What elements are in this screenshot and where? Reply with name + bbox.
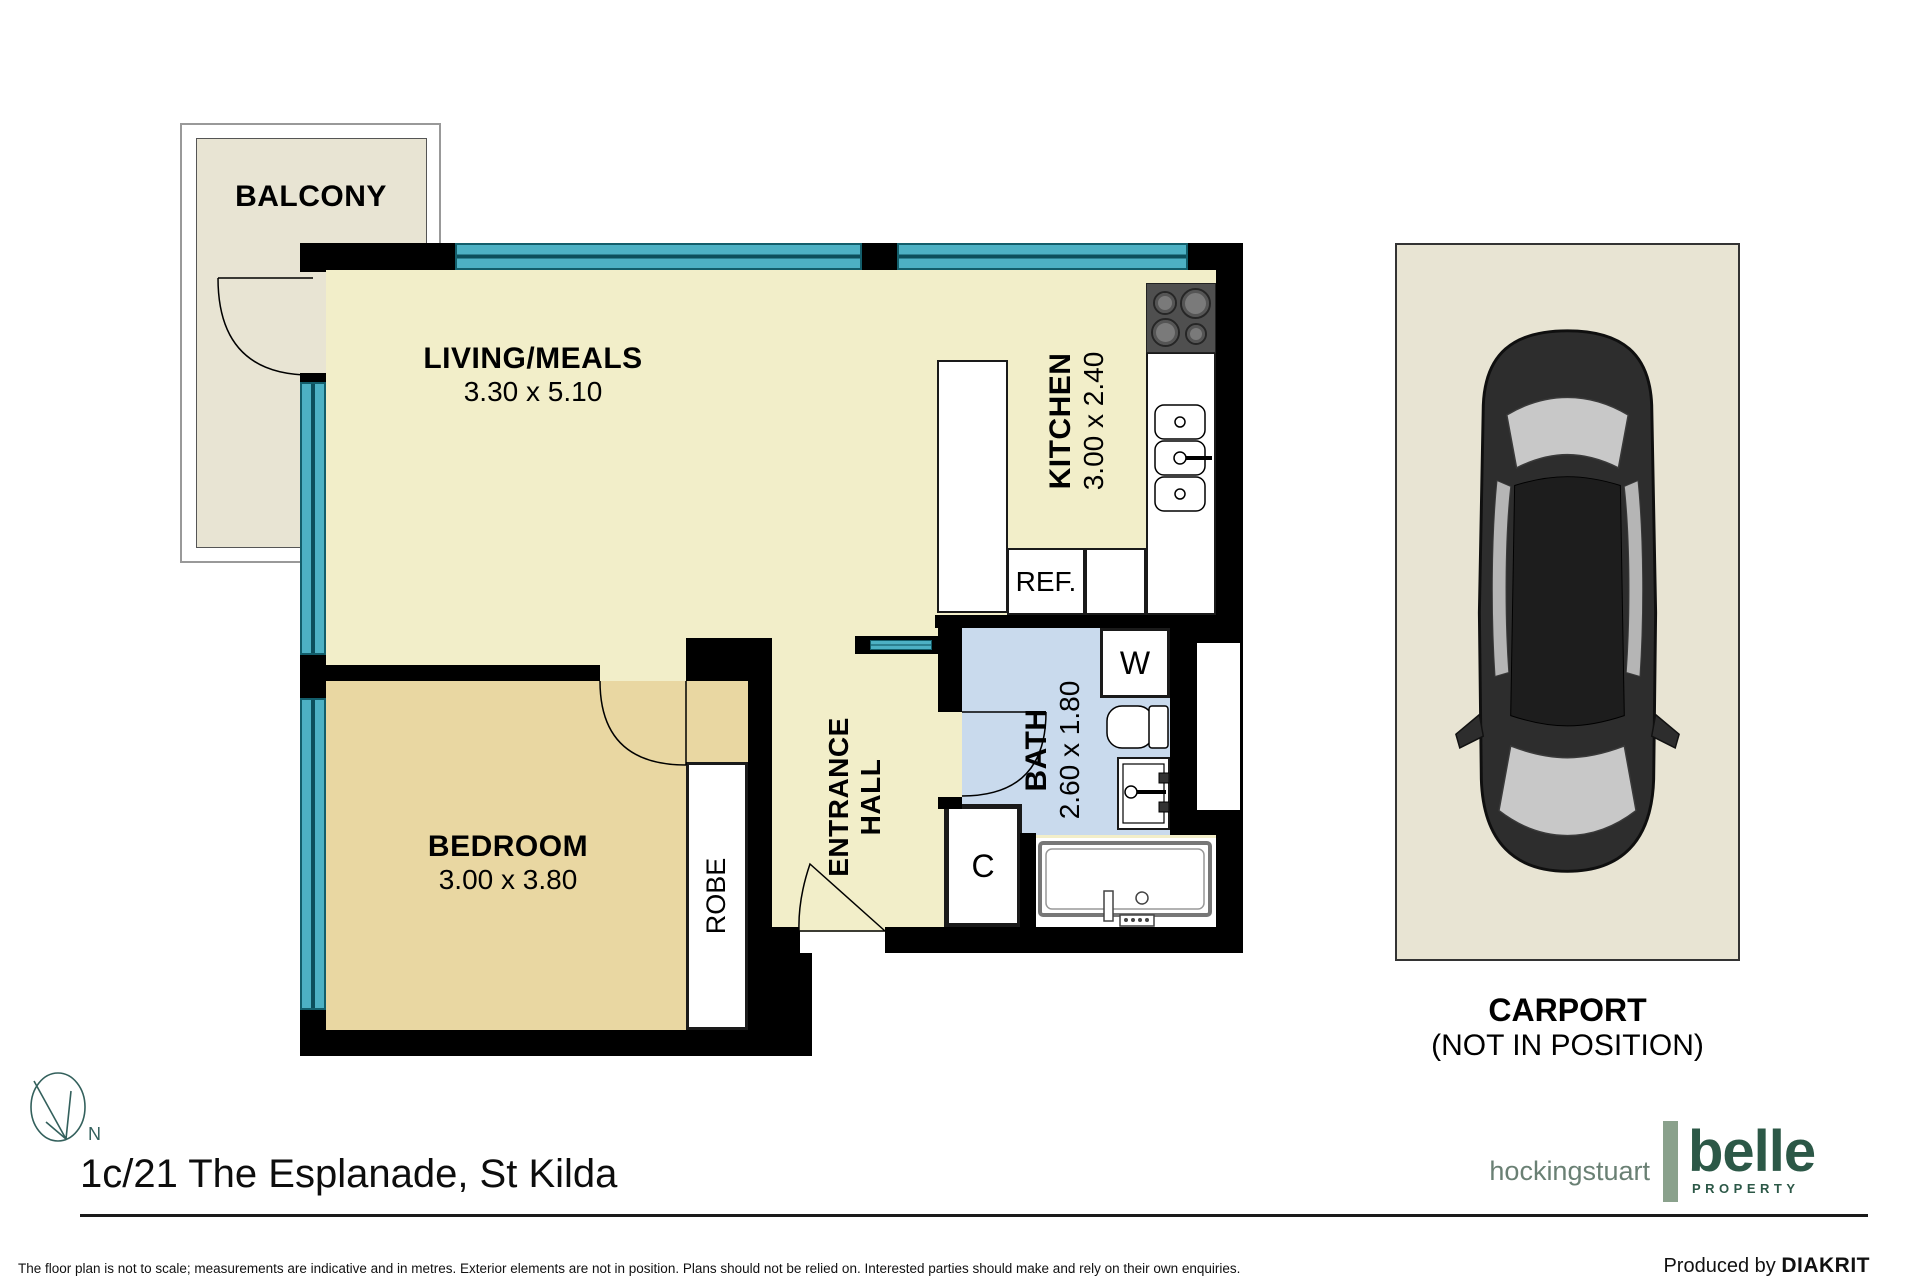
- fridge-text: REF.: [1016, 566, 1077, 598]
- carport-name: CARPORT: [1488, 992, 1646, 1029]
- wall-left-a: [300, 243, 326, 272]
- kitchen-label: KITCHEN 3.00 x 2.40: [1041, 271, 1113, 571]
- wall-bottom-left: [300, 1030, 812, 1056]
- living-room-label: LIVING/MEALS 3.30 x 5.10: [383, 338, 683, 412]
- bedroom-floor-patch: [686, 681, 748, 765]
- vanity-box: [1117, 757, 1170, 830]
- bath-dims: 2.60 x 1.80: [1054, 681, 1086, 820]
- washer-text: W: [1120, 645, 1150, 682]
- entrance-hall-line2: HALL: [855, 759, 887, 836]
- entrance-hall-line1: ENTRANCE: [823, 717, 855, 877]
- belle-logo: belle: [1688, 1118, 1815, 1185]
- wall-living-bedroom-divider: [326, 665, 600, 681]
- wall-step-block: [772, 953, 812, 1056]
- belle-logo-bar: [1663, 1121, 1678, 1202]
- cupboard-label: C: [944, 804, 1022, 928]
- wall-bottom-right-b: [885, 927, 1243, 953]
- producer-name: DIAKRIT: [1781, 1254, 1870, 1277]
- living-room-dims: 3.30 x 5.10: [464, 376, 603, 408]
- burner-icon: [1180, 288, 1211, 319]
- wall-top-pillar: [862, 243, 897, 270]
- window-top-1: [455, 243, 862, 270]
- belle-property-label: PROPERTY: [1692, 1181, 1800, 1196]
- carport-label: CARPORT (NOT IN POSITION): [1395, 988, 1740, 1068]
- wall-right: [1216, 243, 1243, 953]
- wall-bottom-right-a: [772, 927, 800, 953]
- produced-by: Produced by DIAKRIT: [1590, 1254, 1870, 1278]
- bedroom-dims: 3.00 x 3.80: [439, 864, 578, 896]
- bedroom-name: BEDROOM: [428, 830, 588, 865]
- property-address: 1c/21 The Esplanade, St Kilda: [80, 1152, 617, 1197]
- wall-hall-jog-block: [686, 638, 772, 681]
- burner-icon: [1185, 323, 1207, 345]
- service-void: [1197, 643, 1240, 810]
- kitchen-counter-right: [1146, 352, 1216, 615]
- hockingstuart-logo: hockingstuart: [1470, 1156, 1650, 1187]
- fridge-label: REF.: [1007, 551, 1085, 613]
- bath-name: BATH: [1020, 708, 1055, 791]
- window-left-bedroom: [300, 698, 326, 1010]
- cupboard-text: C: [971, 848, 994, 885]
- car-icon: [1450, 318, 1685, 888]
- compass-icon: [31, 1073, 85, 1141]
- stove-cooktop: [1146, 283, 1216, 353]
- kitchen-name: KITCHEN: [1044, 353, 1079, 490]
- window-top-2: [897, 243, 1188, 270]
- balcony-label: BALCONY: [186, 181, 436, 213]
- compass-north-label: N: [88, 1124, 101, 1145]
- disclaimer-text: The floor plan is not to scale; measurem…: [18, 1261, 1240, 1276]
- bedroom-label: BEDROOM 3.00 x 3.80: [358, 826, 658, 900]
- window-left-living: [300, 382, 326, 655]
- wall-left-c: [300, 655, 326, 698]
- wall-robe-right: [748, 681, 772, 1056]
- produced-by-text: Produced by: [1663, 1255, 1775, 1277]
- carport-sublabel: (NOT IN POSITION): [1431, 1029, 1704, 1064]
- footer-divider: [80, 1214, 1868, 1217]
- entrance-hall-label: ENTRANCE HALL: [821, 647, 889, 947]
- floorplan-page: BALCONY: [0, 0, 1920, 1280]
- robe-name: ROBE: [701, 858, 732, 935]
- wall-left-b: [300, 373, 326, 382]
- washer-label: W: [1100, 628, 1170, 698]
- burner-icon: [1153, 291, 1177, 315]
- bath-label: BATH 2.60 x 1.80: [1017, 600, 1089, 900]
- balcony-name: BALCONY: [235, 180, 387, 215]
- kitchen-dims: 3.00 x 2.40: [1078, 352, 1110, 491]
- kitchen-bench: [937, 360, 1008, 613]
- burner-icon: [1151, 318, 1180, 347]
- robe-label: ROBE: [702, 796, 732, 996]
- living-room-name: LIVING/MEALS: [423, 342, 642, 377]
